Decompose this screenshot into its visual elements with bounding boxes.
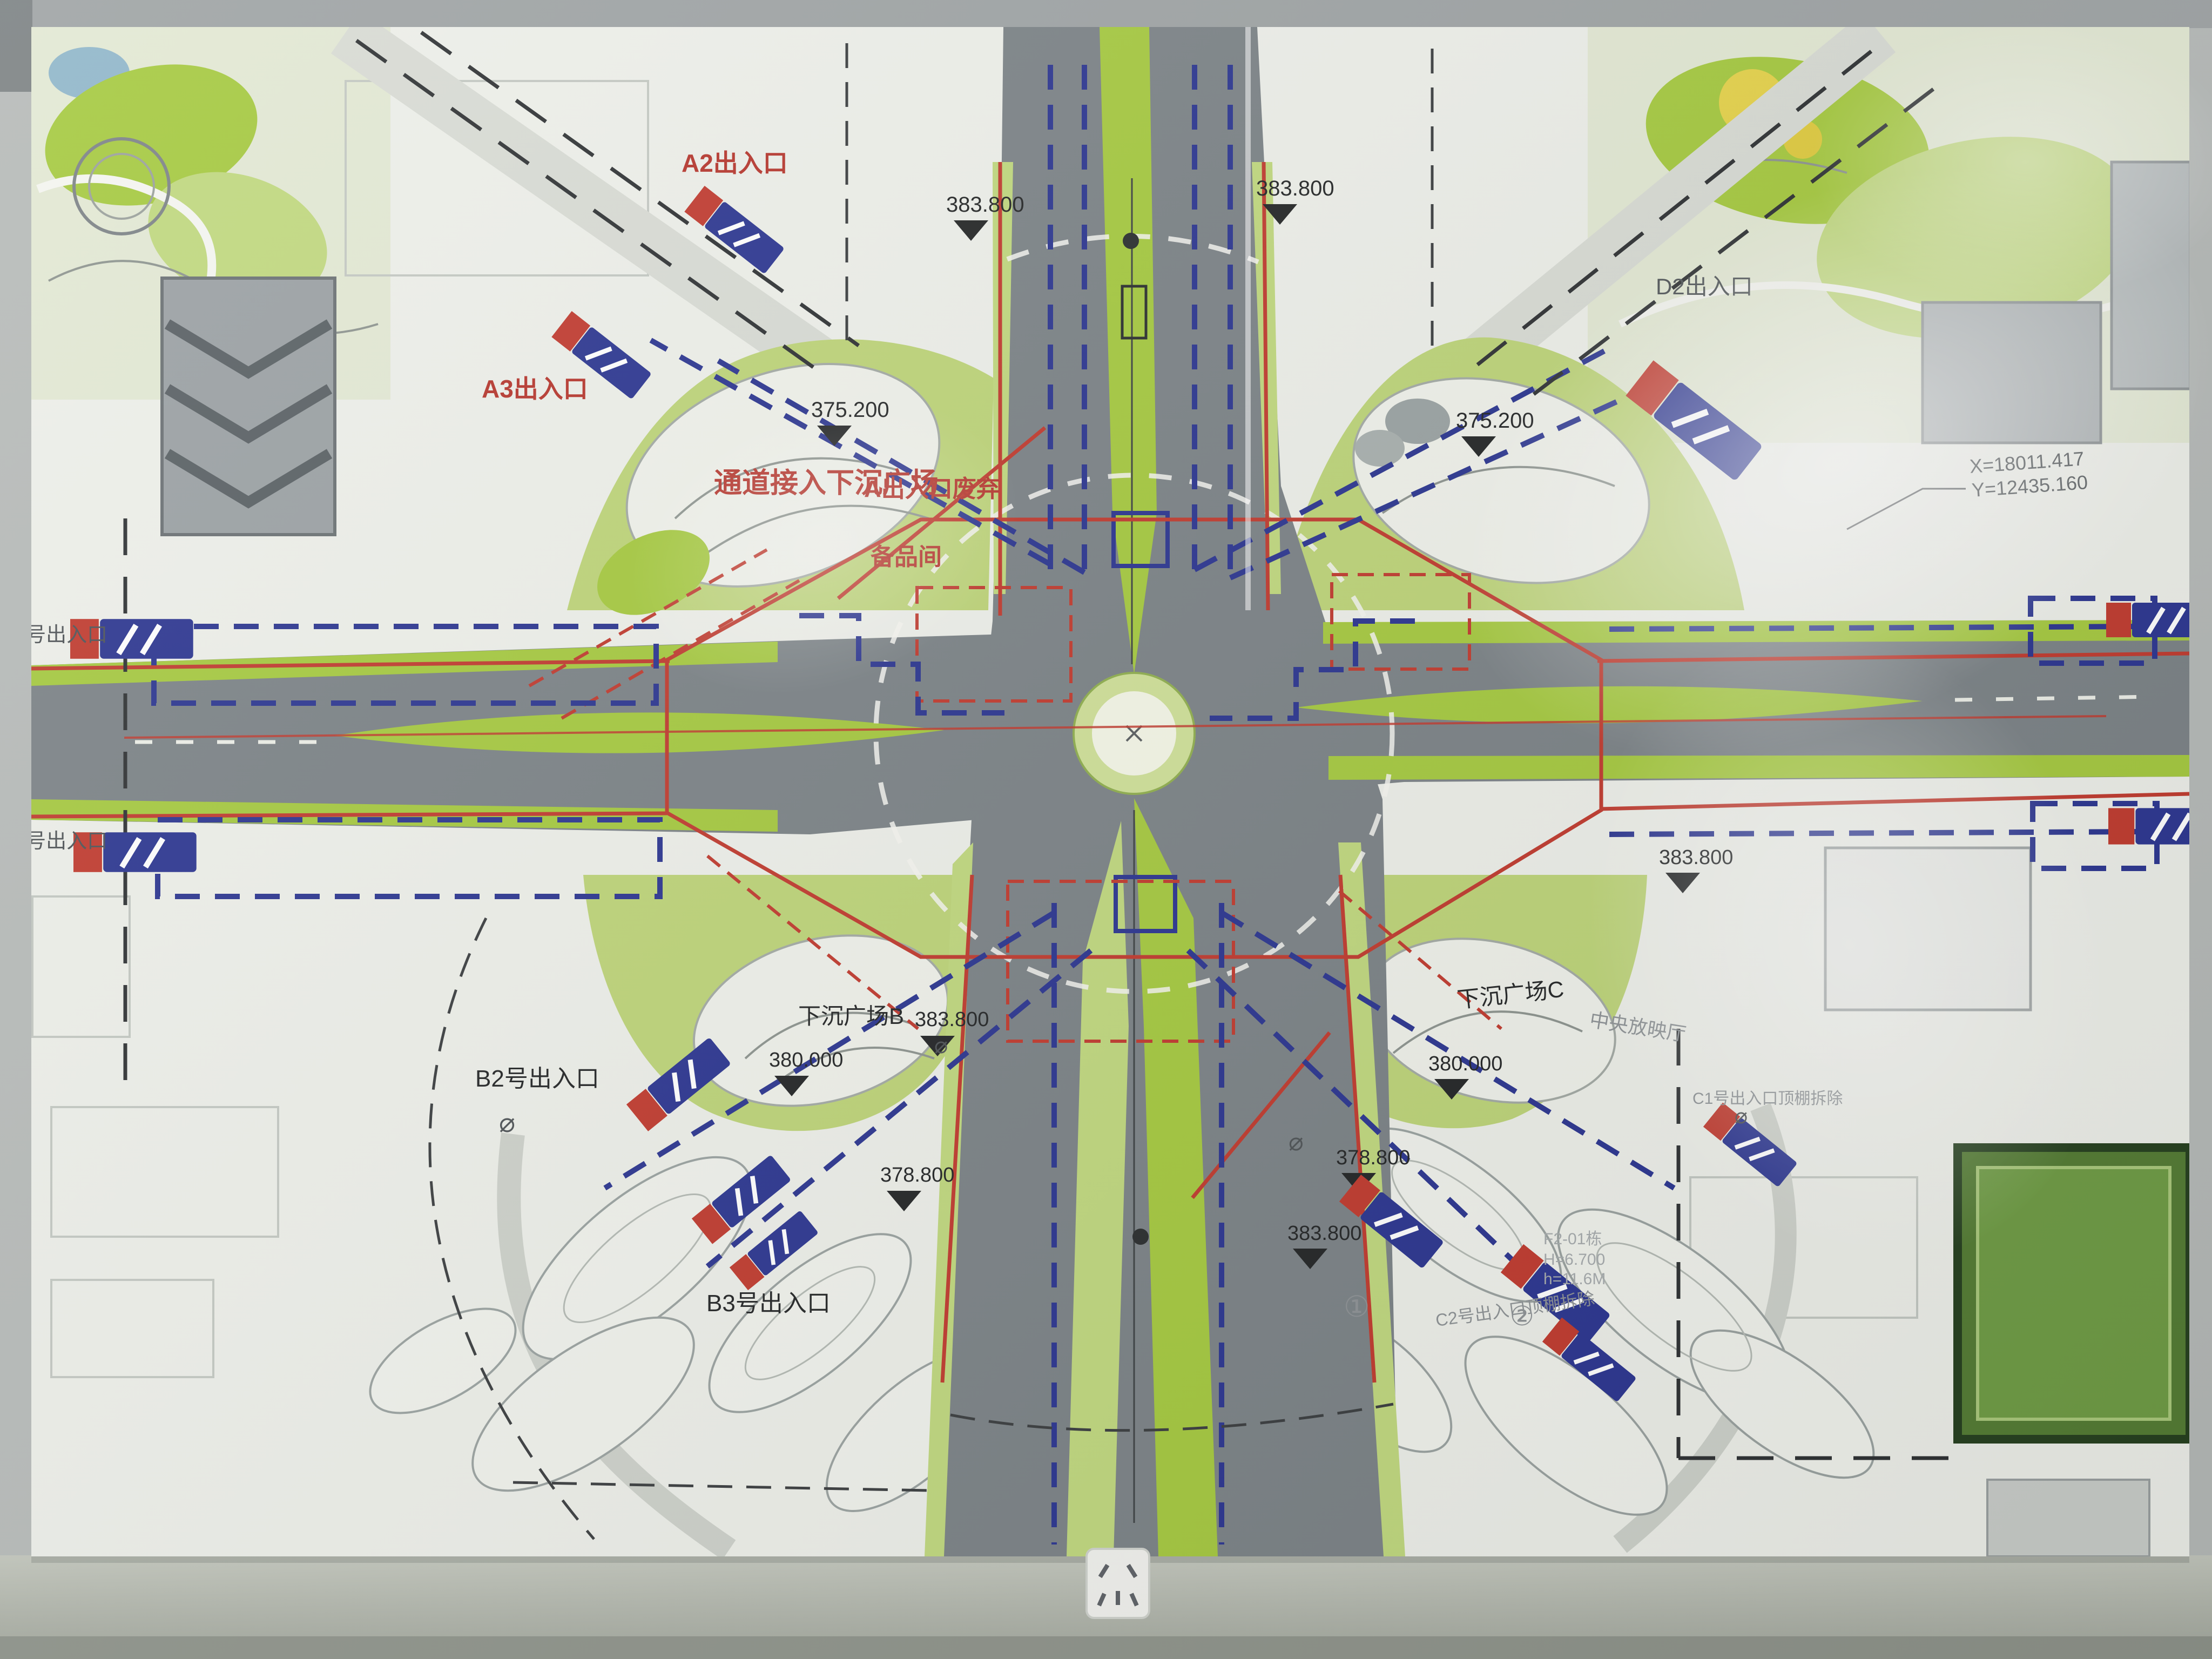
label-elevation: 375.200 <box>1456 409 1534 433</box>
photo-scene: A2出入口A3出入口通道接入下沉广场A出入口废弃备品间383.800383.80… <box>0 0 2212 1659</box>
label-circled-1: ① <box>1344 1291 1370 1323</box>
site-plan-photo: A2出入口A3出入口通道接入下沉广场A出入口废弃备品间383.800383.80… <box>0 0 2212 1659</box>
label-elevation: 378.800 <box>880 1164 954 1186</box>
label-building-number: F2-01栋 <box>1543 1230 1602 1248</box>
central-roundabout <box>1074 673 1195 794</box>
label-elevation: 380.000 <box>1428 1053 1502 1075</box>
label-building-height2: h=11.6M <box>1543 1270 1606 1288</box>
label-building-height: H=6.700 <box>1543 1251 1605 1269</box>
label-elevation: 383.800 <box>946 193 1024 217</box>
label-a2-entrance: A2出入口 <box>682 149 788 177</box>
label-elevation: 383.800 <box>915 1008 989 1031</box>
label-elevation: 383.800 <box>1659 846 1733 869</box>
label-elevation: 383.800 <box>1256 177 1334 200</box>
label-diameter-symbol: ⌀ <box>499 1108 515 1138</box>
label-elevation: 383.800 <box>1287 1222 1361 1245</box>
label-b2-entrance: B2号出入口 <box>475 1065 599 1092</box>
label-diameter-symbol: ⌀ <box>1289 1128 1304 1156</box>
label-elevation: 378.800 <box>1336 1147 1410 1169</box>
label-diameter-symbol: ⌀ <box>1735 1104 1748 1128</box>
label-sunken-plaza-b: 下沉广场B <box>798 1003 904 1029</box>
sports-field <box>1958 1148 2190 1439</box>
label-c1-canopy-demolition: C1号出入口顶棚拆除 <box>1692 1090 1843 1108</box>
label-d2-entrance: D2出入口 <box>1656 274 1753 299</box>
label-spare-parts-room: 备品间 <box>871 544 942 570</box>
power-outlet <box>1087 1549 1149 1618</box>
label-diameter-symbol: ⌀ <box>934 1033 948 1058</box>
label-circled-2: ② <box>1510 1301 1534 1331</box>
label-elevation: 380.000 <box>769 1049 843 1071</box>
label-elevation: 375.200 <box>811 398 889 422</box>
label-a3-entrance: A3出入口 <box>482 375 588 403</box>
label-b3-entrance: B3号出入口 <box>706 1290 831 1317</box>
nw-building <box>162 278 335 535</box>
label-a-entrance-abandoned: A出入口废弃 <box>864 476 1000 502</box>
poster-seam <box>1245 27 1251 610</box>
